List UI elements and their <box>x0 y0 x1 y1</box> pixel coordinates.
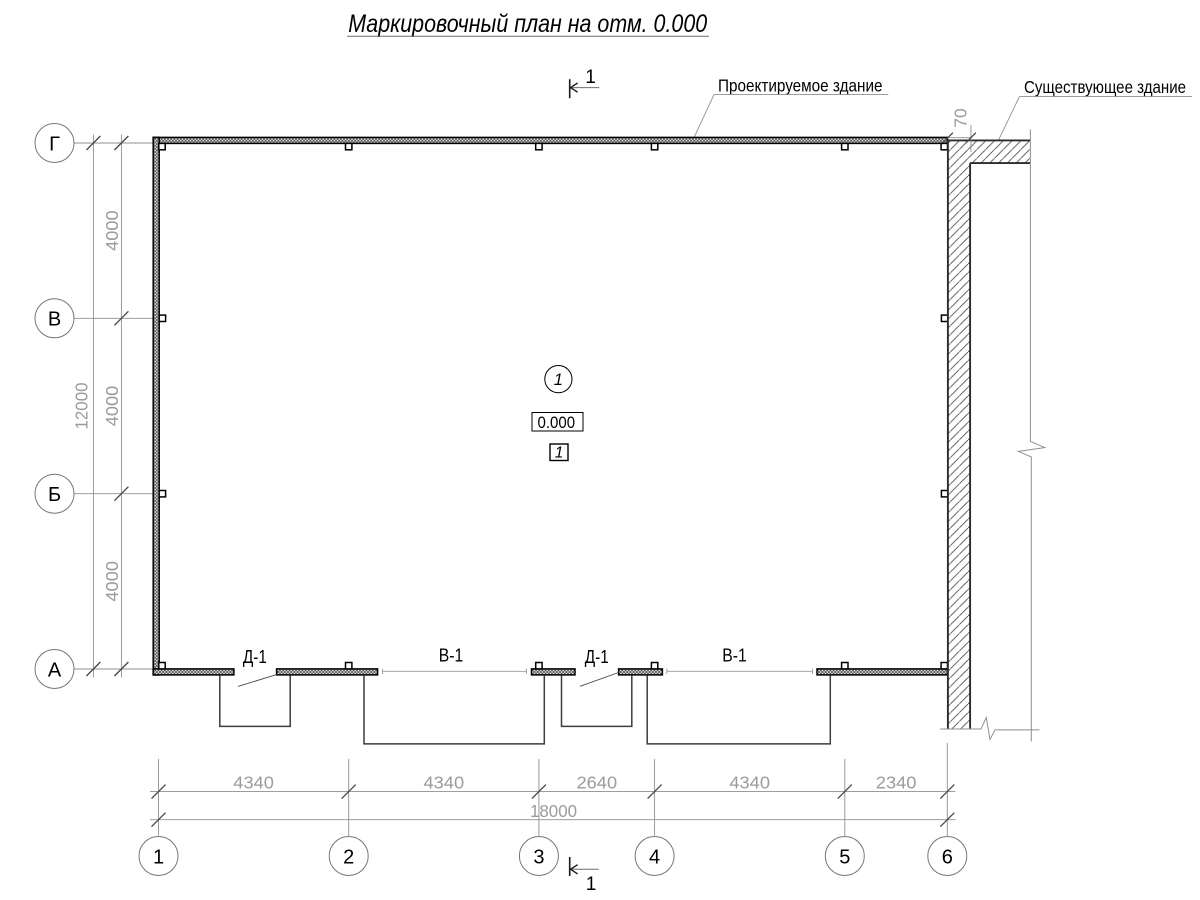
svg-text:6: 6 <box>942 846 953 868</box>
svg-text:1: 1 <box>586 874 597 895</box>
svg-text:В-1: В-1 <box>722 645 747 665</box>
svg-text:1: 1 <box>585 67 596 88</box>
svg-text:А: А <box>48 659 62 681</box>
svg-text:1: 1 <box>554 371 563 389</box>
svg-text:4000: 4000 <box>102 561 122 602</box>
svg-text:4000: 4000 <box>102 210 122 251</box>
svg-text:0.000: 0.000 <box>538 413 576 432</box>
svg-text:Г: Г <box>49 133 60 155</box>
svg-text:4340: 4340 <box>233 773 274 793</box>
svg-text:В: В <box>48 309 61 331</box>
svg-text:1: 1 <box>153 846 164 868</box>
svg-text:3: 3 <box>533 846 544 868</box>
svg-text:Проектируемое здание: Проектируемое здание <box>718 75 883 95</box>
svg-text:Существующее здание: Существующее здание <box>1024 77 1186 97</box>
svg-text:4: 4 <box>649 846 660 868</box>
svg-text:Д-1: Д-1 <box>243 647 267 667</box>
svg-text:4000: 4000 <box>102 385 122 426</box>
svg-text:2640: 2640 <box>577 773 618 793</box>
svg-text:70: 70 <box>951 108 971 128</box>
svg-text:4340: 4340 <box>424 773 465 793</box>
svg-text:Маркировочный план на отм. 0.0: Маркировочный план на отм. 0.000 <box>348 10 707 38</box>
svg-text:2340: 2340 <box>876 773 917 793</box>
svg-text:5: 5 <box>839 846 850 868</box>
svg-text:В-1: В-1 <box>439 645 464 665</box>
svg-text:12000: 12000 <box>71 382 91 429</box>
svg-text:4340: 4340 <box>729 773 770 793</box>
svg-text:Б: Б <box>48 484 61 506</box>
svg-text:18000: 18000 <box>530 801 577 821</box>
svg-text:Д-1: Д-1 <box>585 647 609 667</box>
svg-text:1: 1 <box>555 445 564 462</box>
svg-text:2: 2 <box>343 846 354 868</box>
